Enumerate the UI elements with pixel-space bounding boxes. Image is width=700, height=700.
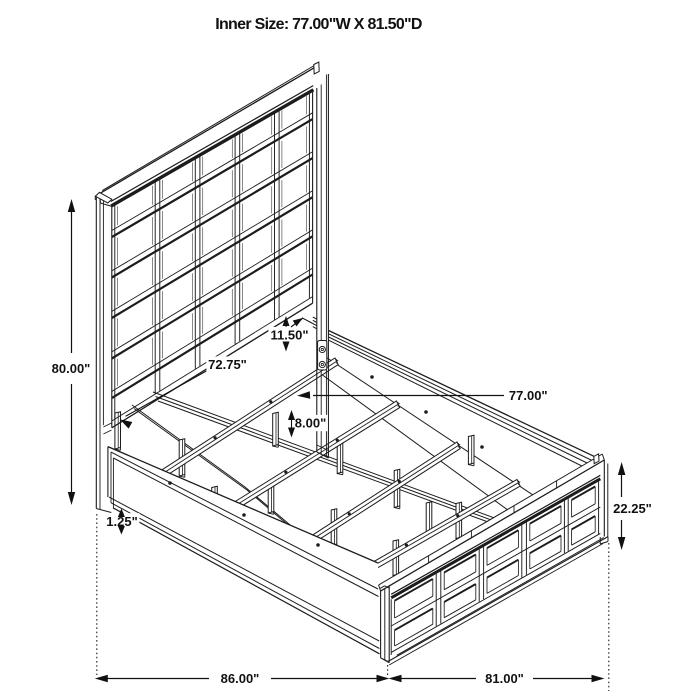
svg-text:8.00": 8.00" <box>295 416 326 431</box>
svg-text:77.00": 77.00" <box>509 388 548 403</box>
svg-text:22.25": 22.25" <box>613 501 652 516</box>
svg-text:Inner Size: 77.00"W X 81.50"D: Inner Size: 77.00"W X 81.50"D <box>215 16 422 33</box>
svg-text:81.00": 81.00" <box>485 671 524 686</box>
svg-text:11.50": 11.50" <box>271 328 309 343</box>
svg-text:86.00": 86.00" <box>221 671 260 686</box>
svg-text:80.00": 80.00" <box>52 361 91 376</box>
svg-text:72.75": 72.75" <box>208 357 247 372</box>
